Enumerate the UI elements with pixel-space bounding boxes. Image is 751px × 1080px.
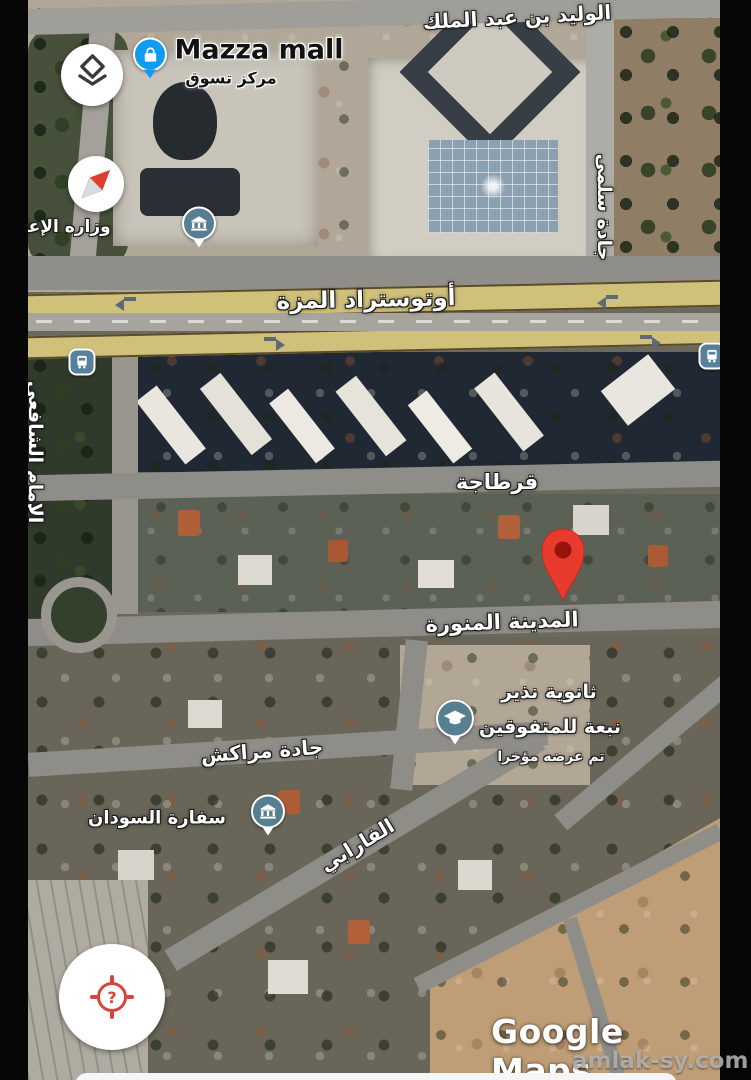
layers-icon [72, 53, 113, 97]
bottom-sheet-edge[interactable] [75, 1073, 677, 1080]
street-label-madina: المدينة المنورة [425, 607, 579, 636]
landmark-icon [182, 207, 216, 241]
satellite-map-canvas[interactable]: الوليد بن عبد الملك جادة سلمى الإمام الش… [28, 0, 720, 1080]
white-building [188, 700, 222, 728]
rooftop [348, 920, 370, 944]
site-watermark: amlak-sy.com [572, 1048, 748, 1074]
right-letterbox-bar [720, 0, 751, 1080]
bus-stop-icon[interactable] [699, 343, 721, 370]
mazza-mall-pin[interactable] [133, 38, 167, 79]
school-poi-marker[interactable] [436, 700, 474, 745]
graduation-cap-icon [436, 700, 474, 738]
highway-lane-dashes [36, 320, 712, 323]
street-label-qartaja: قرطاجة [456, 470, 538, 494]
bus-stop-icon[interactable] [69, 349, 96, 376]
maps-app-screenshot: الوليد بن عبد الملك جادة سلمى الإمام الش… [0, 0, 751, 1080]
street-label-mezzeh-highway: أوتوستراد المزة [276, 285, 456, 315]
poi-label-school-note: تم عرضه مؤخرا [497, 749, 604, 765]
white-building [418, 560, 454, 588]
grand-courtyard [428, 140, 558, 233]
mall-dome-shadow [153, 82, 217, 160]
white-building [238, 555, 272, 585]
rooftop [178, 510, 200, 536]
sudan-embassy-poi-marker[interactable] [251, 795, 285, 836]
shopping-bag-icon [133, 38, 167, 72]
white-building [458, 860, 492, 890]
my-location-button[interactable]: ? [59, 944, 165, 1050]
target-question-icon: ? [90, 975, 134, 1019]
rooftop [498, 515, 520, 539]
left-letterbox-bar [0, 0, 28, 1080]
ministry-poi-marker[interactable] [182, 207, 216, 248]
poi-label-mazza-mall-title: Mazza mall [174, 35, 343, 66]
landmark-icon [251, 795, 285, 829]
street-label-salma: جادة سلمى [593, 154, 615, 261]
rooftop [328, 540, 348, 562]
rooftop [648, 545, 668, 567]
poi-label-sudan-embassy: سفارة السودان [88, 808, 226, 829]
poi-label-ministry: وزاره الإعلام [28, 217, 111, 237]
poi-label-mazza-mall-subtitle: مركز تسوق [185, 69, 276, 88]
field-top-right [614, 18, 720, 268]
poi-label-school-line2: نبعة للمتفوقين [479, 716, 621, 738]
compass-needle-icon [70, 158, 122, 210]
white-building [268, 960, 308, 994]
street-label-imam-shafii: الإمام الشافعي [28, 381, 46, 524]
layers-button[interactable] [61, 44, 123, 106]
question-glyph: ? [97, 982, 127, 1012]
white-building [118, 850, 154, 880]
dropped-pin[interactable] [539, 527, 587, 607]
compass-button[interactable] [68, 156, 124, 212]
poi-label-school-line1: ثانوية نذير [501, 681, 597, 703]
roundabout [41, 577, 117, 653]
